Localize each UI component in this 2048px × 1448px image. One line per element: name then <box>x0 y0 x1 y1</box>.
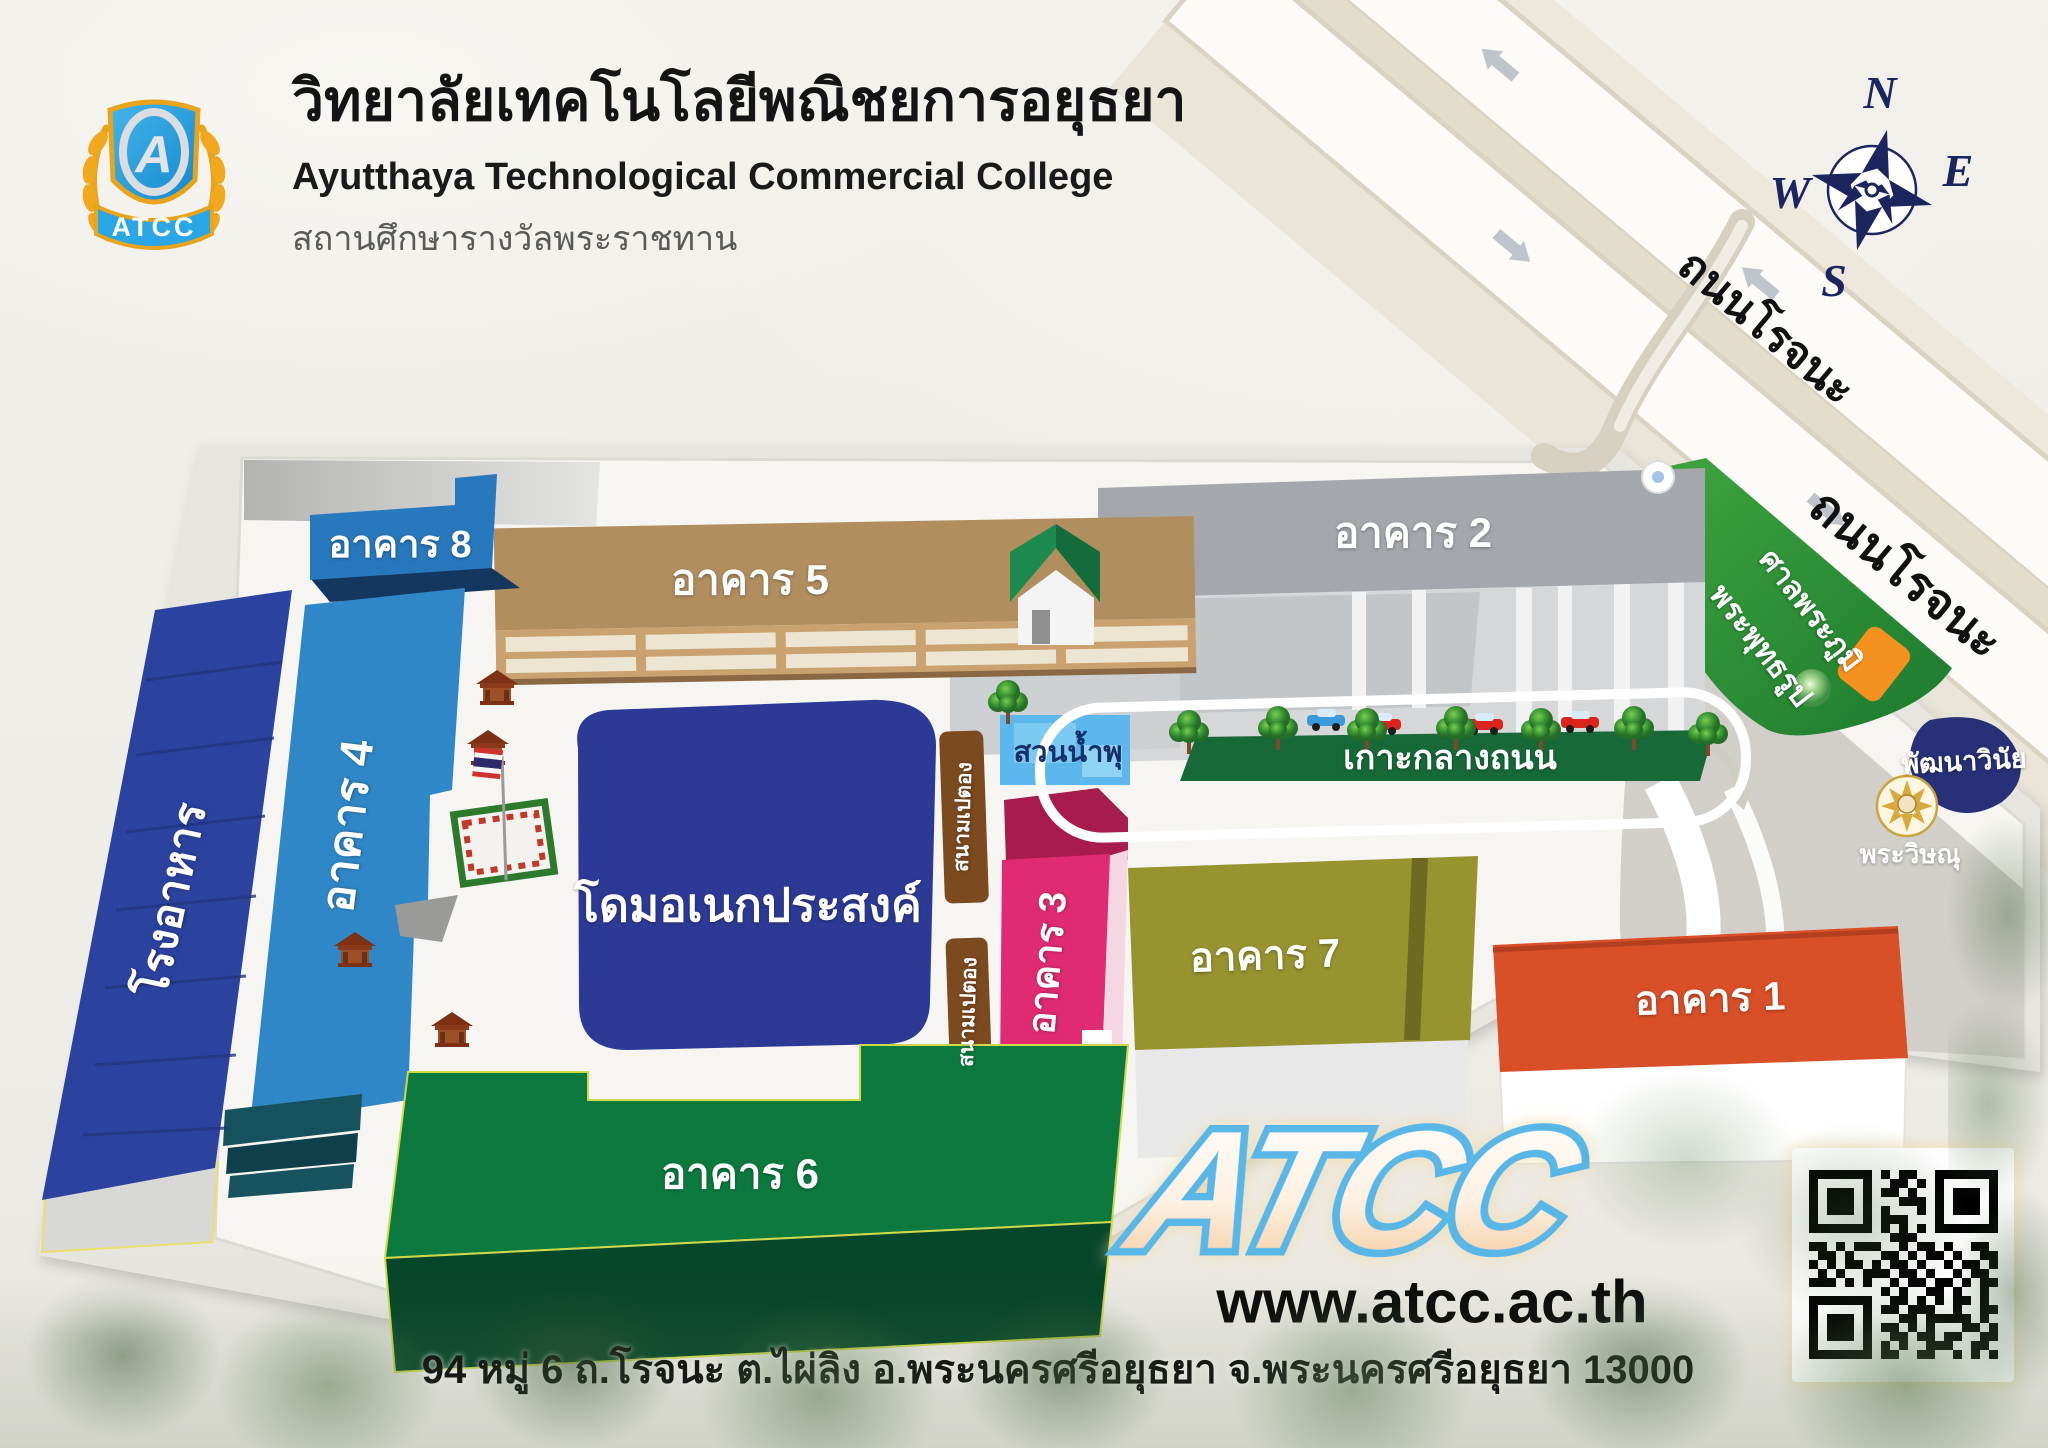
building-label-2: อาคาร 2 <box>1334 512 1492 554</box>
dome-label: โดมอเนกประสงค์ <box>574 882 921 928</box>
website-url: www.atcc.ac.th <box>1216 1268 1647 1337</box>
petanque-label-1: สนามเปตอง <box>951 762 976 872</box>
compass-w: W <box>1770 167 1814 218</box>
dome-building <box>577 700 936 1050</box>
median-label: เกาะกลางถนน <box>1343 741 1557 775</box>
page-title-english: Ayutthaya Technological Commercial Colle… <box>292 156 1187 199</box>
qr-code <box>1792 1148 2014 1382</box>
building-label-5: อาคาร 5 <box>671 559 829 601</box>
svg-text:ATCC: ATCC <box>1109 1097 1598 1284</box>
logo-banner-text: ATCC <box>112 212 197 242</box>
header: วิทยาลัยเทคโนโลยีพณิชยการอยุธยา Ayutthay… <box>292 56 1187 265</box>
compass-n: N <box>1862 67 1898 118</box>
address-line: 94 หมู่ 6 ถ.โรจนะ ต.ไผ่ลิง อ.พระนครศรีอย… <box>422 1337 1695 1401</box>
compass-s: S <box>1821 255 1847 306</box>
college-logo: A ATCC <box>81 102 228 248</box>
discipline-label: พัฒนาวินัย <box>1901 745 2027 779</box>
building-label-6: อาคาร 6 <box>661 1153 819 1195</box>
campus-map-page: N W E S A ATCC ATCC <box>0 0 2048 1448</box>
petanque-label-2: สนามเปตอง <box>956 957 981 1067</box>
atcc-wordmark: ATCC <box>1109 1097 1598 1284</box>
vishnu-label: พระวิษณุ <box>1860 841 1961 867</box>
page-subtitle: สถานศึกษารางวัลพระราชทาน <box>292 211 1187 265</box>
building-label-8: อาคาร 8 <box>328 526 471 564</box>
building-label-1: อาคาร 1 <box>1634 976 1786 1021</box>
compass-e: E <box>1942 145 1974 196</box>
vishnu-emblem <box>1877 776 1937 836</box>
building-label-7: อาคาร 7 <box>1189 933 1341 978</box>
page-title-thai: วิทยาลัยเทคโนโลยีพณิชยการอยุธยา <box>292 56 1187 146</box>
logo-letter: A <box>133 126 173 184</box>
fountain-label: สวนน้ำพุ <box>1013 739 1122 768</box>
